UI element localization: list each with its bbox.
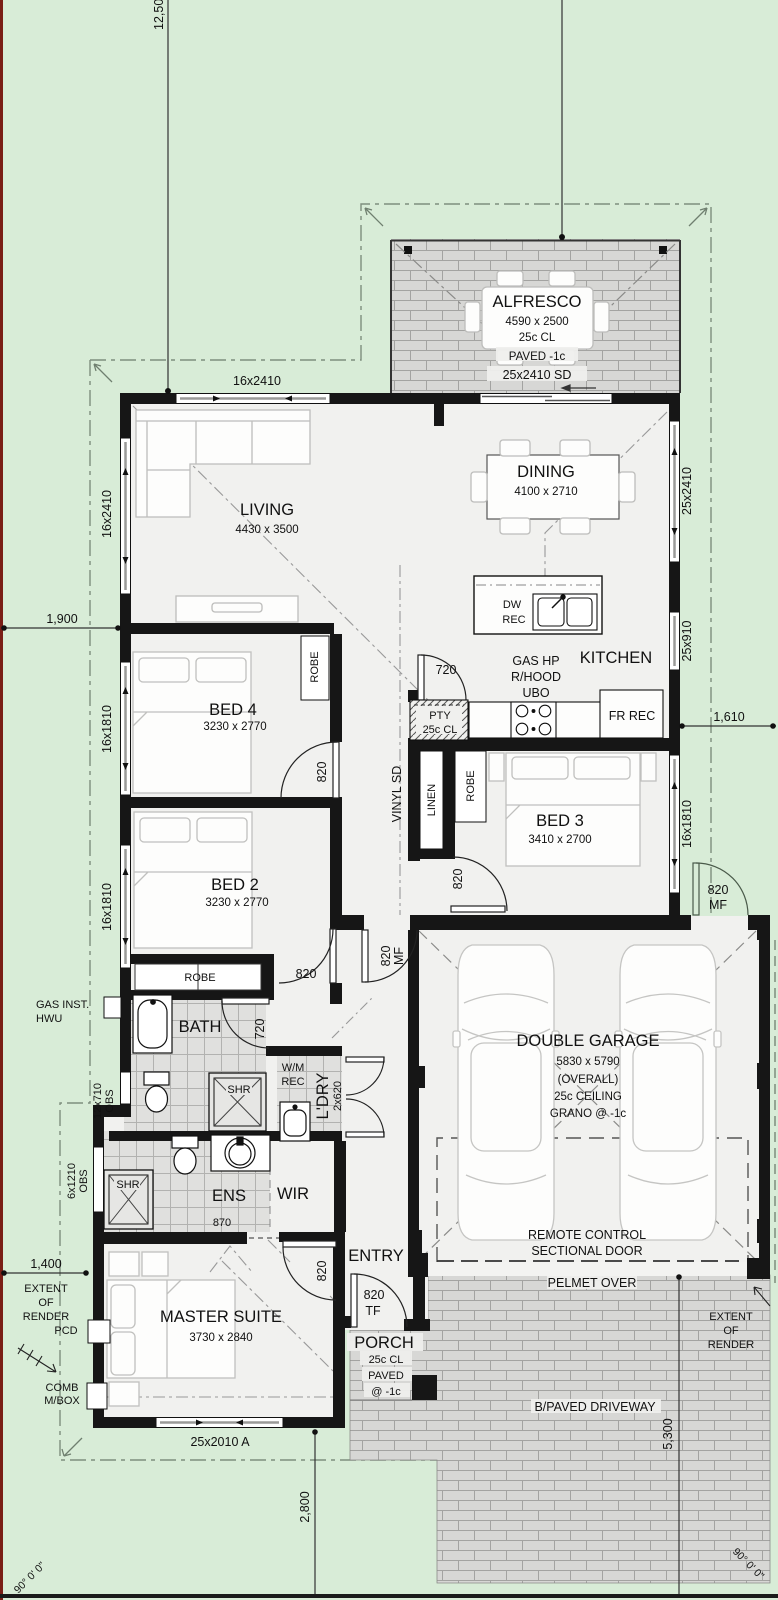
- svg-text:(OVERALL): (OVERALL): [558, 1074, 619, 1086]
- svg-text:ROBE: ROBE: [309, 651, 321, 682]
- svg-text:DINING: DINING: [517, 463, 575, 481]
- svg-text:BED 4: BED 4: [209, 701, 257, 719]
- svg-text:L'DRY: L'DRY: [314, 1073, 332, 1120]
- svg-text:PCD: PCD: [54, 1325, 77, 1337]
- svg-text:820: 820: [379, 946, 393, 967]
- svg-text:COMB: COMB: [46, 1382, 79, 1394]
- svg-text:W/M: W/M: [282, 1062, 305, 1074]
- svg-text:KITCHEN: KITCHEN: [580, 649, 652, 667]
- svg-text:25x2410: 25x2410: [680, 467, 694, 515]
- svg-text:PAVED -1c: PAVED -1c: [509, 351, 566, 363]
- svg-text:GAS HP: GAS HP: [512, 654, 559, 668]
- svg-text:1,900: 1,900: [46, 612, 77, 626]
- svg-text:720: 720: [253, 1019, 267, 1040]
- svg-text:25c CL: 25c CL: [423, 724, 458, 736]
- svg-text:16x2410: 16x2410: [233, 374, 281, 388]
- svg-text:820: 820: [451, 869, 465, 890]
- svg-text:PELMET OVER: PELMET OVER: [548, 1276, 637, 1290]
- svg-text:820: 820: [364, 1288, 385, 1302]
- svg-text:REC: REC: [502, 614, 525, 626]
- svg-text:2,800: 2,800: [298, 1491, 312, 1522]
- svg-text:870: 870: [213, 1217, 231, 1229]
- svg-text:25x910: 25x910: [680, 620, 694, 661]
- svg-text:1,610: 1,610: [713, 710, 744, 724]
- svg-text:PTY: PTY: [429, 710, 451, 722]
- svg-text:4100 x 2710: 4100 x 2710: [514, 486, 577, 498]
- svg-text:RENDER: RENDER: [708, 1339, 755, 1351]
- svg-text:16x1810: 16x1810: [100, 705, 114, 753]
- svg-text:DOUBLE GARAGE: DOUBLE GARAGE: [516, 1032, 659, 1050]
- svg-text:820: 820: [296, 967, 317, 981]
- svg-text:ENTRY: ENTRY: [348, 1247, 404, 1265]
- svg-text:PORCH: PORCH: [354, 1334, 414, 1352]
- svg-text:REMOTE CONTROL: REMOTE CONTROL: [528, 1228, 646, 1242]
- svg-text:OF: OF: [723, 1325, 739, 1337]
- svg-text:BED 2: BED 2: [211, 876, 259, 894]
- svg-text:ROBE: ROBE: [184, 972, 215, 984]
- svg-text:4430 x 3500: 4430 x 3500: [235, 524, 298, 536]
- svg-text:3230 x 2770: 3230 x 2770: [205, 897, 268, 909]
- svg-text:MF: MF: [392, 947, 406, 965]
- svg-text:R/HOOD: R/HOOD: [511, 670, 561, 684]
- svg-text:VINYL SD: VINYL SD: [390, 766, 404, 823]
- svg-text:25c CEILING: 25c CEILING: [554, 1091, 622, 1103]
- svg-text:25c CL: 25c CL: [519, 332, 556, 344]
- svg-text:820: 820: [708, 883, 729, 897]
- svg-text:2x620: 2x620: [332, 1081, 344, 1111]
- svg-text:ALFRESCO: ALFRESCO: [493, 293, 582, 311]
- svg-text:25c CL: 25c CL: [369, 1354, 404, 1366]
- svg-text:LIVING: LIVING: [240, 501, 294, 519]
- svg-text:DW: DW: [503, 599, 522, 611]
- svg-text:3410 x 2700: 3410 x 2700: [528, 834, 591, 846]
- svg-text:TF: TF: [365, 1304, 381, 1318]
- svg-text:WIR: WIR: [277, 1185, 309, 1203]
- svg-text:MF: MF: [709, 898, 727, 912]
- svg-text:BATH: BATH: [179, 1018, 222, 1036]
- svg-text:820: 820: [315, 1261, 329, 1282]
- svg-text:OBS: OBS: [104, 1089, 116, 1112]
- svg-text:3730 x 2840: 3730 x 2840: [189, 1332, 252, 1344]
- svg-text:3230 x 2770: 3230 x 2770: [203, 721, 266, 733]
- svg-text:16x1810: 16x1810: [680, 800, 694, 848]
- svg-text:SECTIONAL DOOR: SECTIONAL DOOR: [531, 1244, 642, 1258]
- svg-text:ROBE: ROBE: [465, 770, 477, 801]
- svg-text:RENDER: RENDER: [23, 1311, 70, 1323]
- svg-text:12x710: 12x710: [92, 1083, 104, 1119]
- svg-text:16x2410: 16x2410: [100, 490, 114, 538]
- svg-text:820: 820: [315, 762, 329, 783]
- svg-text:4590 x 2500: 4590 x 2500: [505, 316, 568, 328]
- svg-text:EXTENT: EXTENT: [709, 1311, 753, 1323]
- svg-text:OF: OF: [38, 1297, 54, 1309]
- svg-text:SHR: SHR: [116, 1179, 139, 1191]
- svg-text:BED 3: BED 3: [536, 812, 584, 830]
- svg-text:ENS: ENS: [212, 1187, 246, 1205]
- svg-text:720: 720: [436, 663, 457, 677]
- svg-text:GRANO @ -1c: GRANO @ -1c: [550, 1108, 626, 1120]
- svg-text:MASTER SUITE: MASTER SUITE: [160, 1308, 282, 1326]
- svg-text:FR REC: FR REC: [609, 709, 656, 723]
- svg-text:OBS: OBS: [78, 1169, 90, 1192]
- svg-text:6x1210: 6x1210: [66, 1163, 78, 1199]
- svg-text:25x2410 SD: 25x2410 SD: [503, 368, 572, 382]
- svg-text:HWU: HWU: [36, 1013, 62, 1025]
- svg-text:25x2010 A: 25x2010 A: [190, 1435, 250, 1449]
- svg-text:1,400: 1,400: [30, 1257, 61, 1271]
- svg-text:16x1810: 16x1810: [100, 883, 114, 931]
- svg-text:B/PAVED DRIVEWAY: B/PAVED DRIVEWAY: [534, 1400, 656, 1414]
- svg-text:5,300: 5,300: [661, 1418, 675, 1449]
- svg-text:LINEN: LINEN: [426, 784, 438, 816]
- svg-text:5830 x 5790: 5830 x 5790: [556, 1056, 619, 1068]
- svg-text:PAVED: PAVED: [368, 1370, 404, 1382]
- svg-text:REC: REC: [281, 1076, 304, 1088]
- svg-text:EXTENT: EXTENT: [24, 1283, 68, 1295]
- svg-text:@ -1c: @ -1c: [371, 1386, 401, 1398]
- svg-text:UBO: UBO: [522, 686, 549, 700]
- svg-text:12,500: 12,500: [152, 0, 166, 30]
- svg-text:SHR: SHR: [227, 1084, 250, 1096]
- svg-text:GAS INST.: GAS INST.: [36, 999, 89, 1011]
- svg-text:M/BOX: M/BOX: [44, 1395, 80, 1407]
